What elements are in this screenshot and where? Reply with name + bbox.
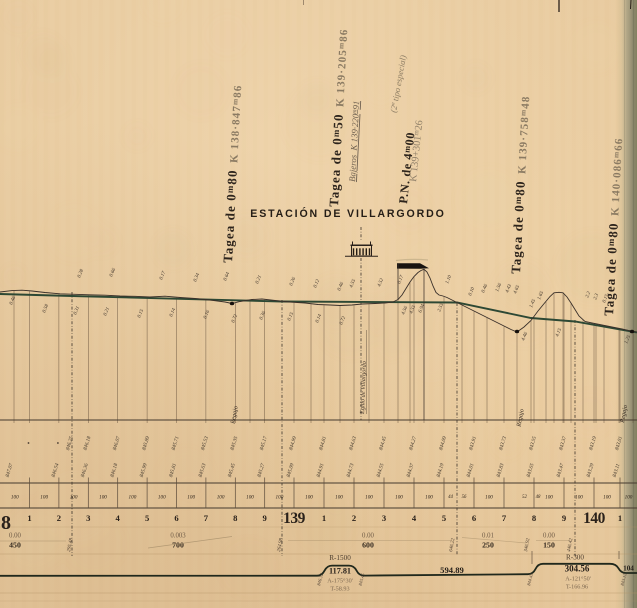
- svg-text:5: 5: [145, 513, 149, 523]
- svg-text:100: 100: [217, 495, 225, 501]
- svg-text:104: 104: [623, 565, 634, 573]
- svg-text:100: 100: [395, 495, 403, 501]
- svg-text:100: 100: [276, 495, 284, 501]
- svg-text:7: 7: [502, 513, 507, 523]
- svg-text:0.00: 0.00: [543, 533, 555, 540]
- svg-text:44: 44: [448, 495, 453, 500]
- svg-text:0.00: 0.00: [362, 533, 374, 540]
- svg-text:ESTACIÓN DE VILLARGORDO: ESTACIÓN DE VILLARGORDO: [250, 207, 445, 220]
- svg-text:700: 700: [172, 541, 184, 550]
- svg-text:600: 600: [362, 541, 374, 550]
- svg-text:9: 9: [562, 513, 566, 523]
- svg-text:1: 1: [322, 513, 326, 523]
- svg-text:100: 100: [335, 495, 343, 501]
- svg-text:1: 1: [618, 513, 622, 523]
- svg-text:2: 2: [57, 513, 61, 523]
- svg-text:100: 100: [425, 495, 433, 501]
- svg-text:0.003: 0.003: [170, 533, 186, 540]
- svg-text:100: 100: [158, 495, 166, 501]
- svg-text:48: 48: [536, 495, 541, 500]
- svg-text:594.89: 594.89: [440, 565, 464, 575]
- svg-text:T-58.93: T-58.93: [330, 586, 349, 593]
- svg-text:100: 100: [11, 495, 19, 501]
- svg-text:A-121°50': A-121°50': [565, 576, 591, 583]
- svg-text:100: 100: [129, 495, 137, 501]
- svg-text:6: 6: [174, 513, 179, 523]
- svg-text:6: 6: [472, 513, 477, 523]
- svg-text:450: 450: [9, 541, 21, 550]
- svg-text:304.56: 304.56: [565, 564, 590, 574]
- svg-text:R-1500: R-1500: [329, 554, 351, 562]
- svg-text:100: 100: [603, 495, 611, 501]
- svg-text:100: 100: [246, 495, 254, 501]
- svg-text:4: 4: [116, 513, 121, 523]
- svg-text:100: 100: [625, 495, 633, 501]
- svg-text:150: 150: [543, 541, 555, 550]
- svg-text:R-300: R-300: [566, 554, 584, 562]
- svg-text:3: 3: [86, 513, 90, 523]
- svg-text:139: 139: [283, 510, 306, 527]
- svg-text:100: 100: [70, 495, 78, 501]
- svg-text:100: 100: [305, 495, 313, 501]
- svg-text:4: 4: [412, 513, 417, 523]
- svg-text:100: 100: [187, 495, 195, 501]
- svg-text:3: 3: [382, 513, 386, 523]
- svg-text:8: 8: [1, 512, 11, 534]
- svg-text:2: 2: [352, 513, 356, 523]
- svg-text:8: 8: [532, 513, 537, 523]
- svg-text:7: 7: [204, 513, 209, 523]
- svg-text:117.81: 117.81: [329, 567, 351, 576]
- svg-text:100: 100: [545, 495, 553, 501]
- svg-text:A-175°30': A-175°30': [327, 578, 353, 585]
- svg-text:8: 8: [233, 513, 238, 523]
- svg-text:0.00: 0.00: [9, 533, 21, 540]
- svg-text:52: 52: [522, 495, 527, 500]
- svg-text:9: 9: [263, 513, 267, 523]
- svg-text:100: 100: [40, 495, 48, 501]
- svg-text:T-166.96: T-166.96: [566, 584, 588, 591]
- svg-text:100: 100: [365, 495, 373, 501]
- svg-text:1: 1: [27, 513, 31, 523]
- svg-text:100: 100: [485, 495, 493, 501]
- svg-text:250: 250: [482, 541, 494, 550]
- svg-text:0.01: 0.01: [482, 533, 494, 540]
- svg-text:100: 100: [99, 495, 107, 501]
- svg-text:5: 5: [442, 513, 446, 523]
- svg-text:100: 100: [575, 495, 583, 501]
- svg-text:56: 56: [462, 495, 467, 500]
- svg-text:140: 140: [583, 510, 606, 527]
